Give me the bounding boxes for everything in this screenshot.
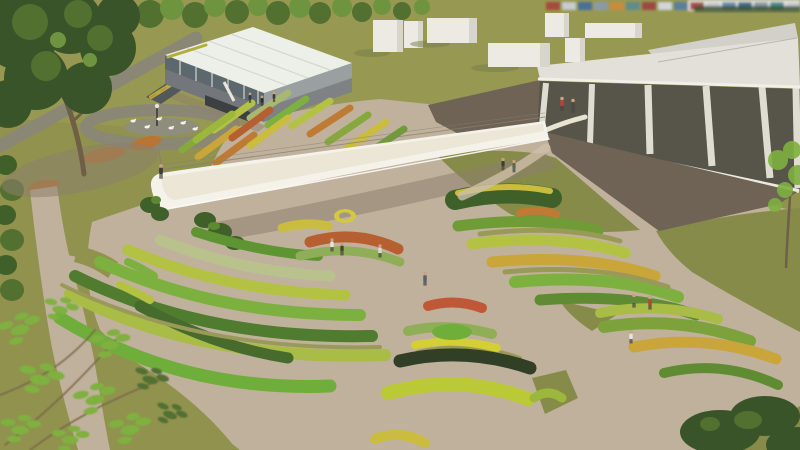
box-front (427, 18, 469, 43)
box-side (635, 23, 642, 38)
box-front (488, 43, 540, 67)
box-front (545, 13, 564, 37)
garden-bed-row (534, 393, 562, 398)
box-side (580, 38, 585, 62)
lamp-head (155, 104, 159, 108)
garden-bed-row (428, 302, 482, 308)
garden-bed-row (520, 211, 556, 214)
box-side (397, 20, 403, 52)
box-side (564, 13, 569, 37)
box-front (373, 20, 397, 52)
column (590, 84, 592, 144)
shrub-mound (432, 324, 472, 340)
box-front (565, 38, 580, 62)
box-front (585, 23, 635, 38)
box-side (469, 18, 477, 43)
park-aerial-render (0, 0, 800, 450)
garden-bed-row (282, 224, 328, 228)
render-viewport (0, 0, 800, 450)
column (648, 85, 650, 154)
background-treeline (694, 6, 800, 12)
box-side (540, 43, 550, 67)
